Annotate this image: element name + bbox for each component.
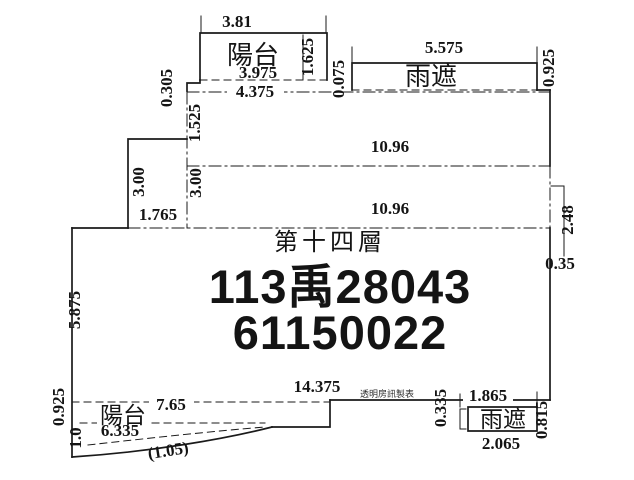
dim-bottom-canopy-bottom-width: 2.065 xyxy=(482,434,520,453)
dim-bottom-canopy-height: 0.815 xyxy=(532,401,551,439)
dim-left-step-width: 1.765 xyxy=(139,205,177,224)
dim-top-balcony-right-offset: 0.075 xyxy=(329,60,348,98)
dim-top-balcony-top-width: 3.81 xyxy=(222,12,252,31)
dim-bottom-balcony-lower-width: 6.335 xyxy=(101,421,139,440)
floor-plan-svg: 3.81 陽台 3.975 1.625 0.305 4.375 0.075 1.… xyxy=(0,0,634,480)
bottom-balcony-step xyxy=(272,400,330,427)
dim-depth-below-balcony: 1.525 xyxy=(185,104,204,142)
serial-number: 61150022 xyxy=(233,306,448,359)
dim-top-canopy-width: 5.575 xyxy=(425,38,463,57)
floor-plan-page: 3.81 陽台 3.975 1.625 0.305 4.375 0.075 1.… xyxy=(0,0,634,480)
dim-bottom-canopy-top-width: 1.865 xyxy=(469,386,507,405)
dim-top-balcony-lower-width: 4.375 xyxy=(236,82,274,101)
dim-lower-width: 10.96 xyxy=(371,199,409,218)
dim-bottom-canopy-left-offset: 0.335 xyxy=(431,389,450,427)
dim-top-balcony-inner-width: 3.975 xyxy=(239,63,277,82)
bottom-canopy-label: 雨遮 xyxy=(480,407,526,432)
top-canopy-label: 雨遮 xyxy=(405,62,457,91)
dim-top-balcony-left-offset: 0.305 xyxy=(157,69,176,107)
dim-bottom-width: 14.375 xyxy=(294,377,341,396)
balcony-left-step xyxy=(187,80,200,91)
dim-left-step-inner-height: 3.00 xyxy=(186,168,205,198)
floor-label: 第十四層 xyxy=(274,229,386,256)
dim-right-offset: 0.35 xyxy=(545,254,575,273)
dim-right-upper-height: 2.48 xyxy=(558,205,577,235)
dim-left-height: 5.875 xyxy=(65,291,84,329)
dim-top-canopy-height: 0.925 xyxy=(539,49,558,87)
bottom-canopy-bracket xyxy=(460,409,466,429)
dim-left-step-outer-height: 3.00 xyxy=(129,167,148,197)
dim-bottom-balcony-left-lower-height: 1.0 xyxy=(66,427,85,448)
watermark-text: 透明房訊製表 xyxy=(360,388,414,399)
dim-top-balcony-height: 1.625 xyxy=(298,38,317,76)
dim-bottom-balcony-curve-depth: (1.05) xyxy=(146,438,190,463)
dim-bottom-balcony-left-height: 0.925 xyxy=(49,388,68,426)
dim-upper-width: 10.96 xyxy=(371,137,409,156)
dim-bottom-balcony-top-width: 7.65 xyxy=(156,395,186,414)
